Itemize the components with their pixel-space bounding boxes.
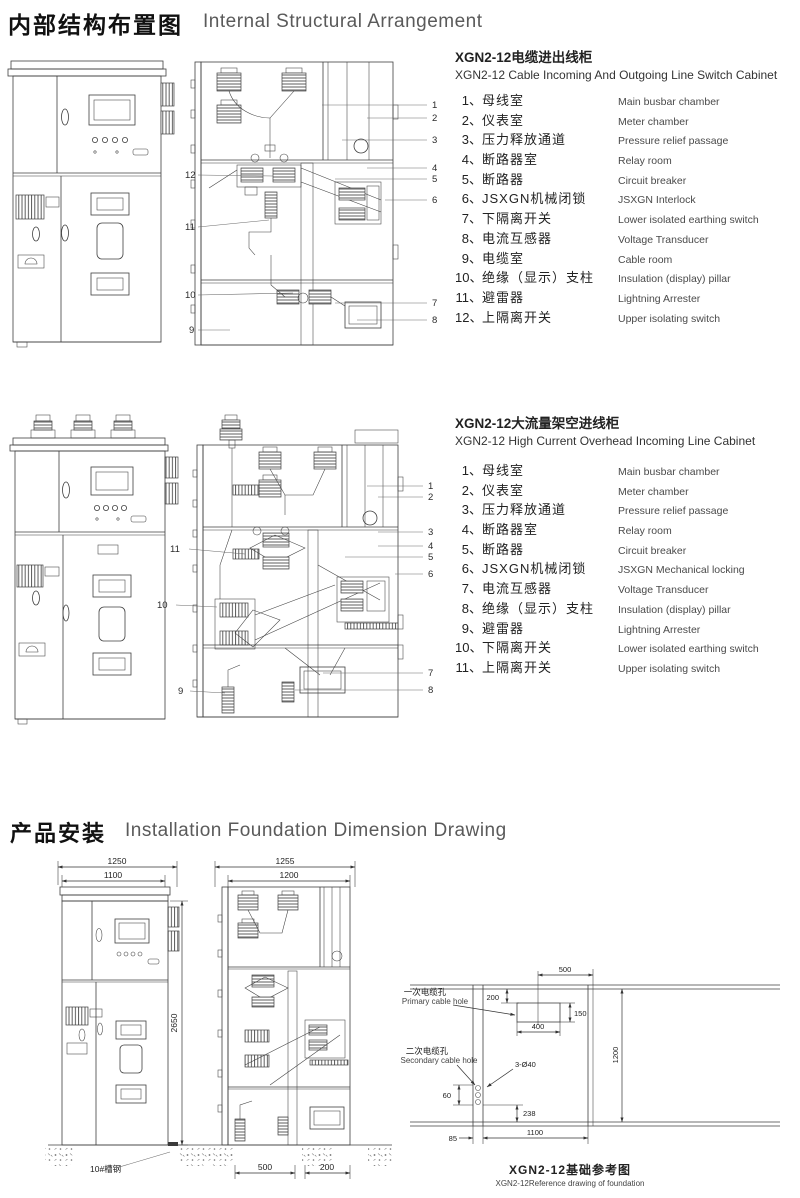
cabinet2-title-cn: XGN2-12大流量架空进线柜 <box>455 412 800 432</box>
cabinet2-title-en: XGN2-12 High Current Overhead Incoming L… <box>455 434 800 448</box>
item-label-cn: 压力释放通道 <box>482 129 618 148</box>
callout-7: 7 <box>432 298 437 309</box>
list-item: 8、电流互感器Voltage Transducer <box>455 228 800 248</box>
item-number: 5、 <box>455 539 482 558</box>
item-number: 9、 <box>455 618 482 637</box>
secondary-hole-label-cn: 二次电缆孔 <box>406 1046 449 1056</box>
item-number: 12、 <box>455 307 482 326</box>
item-number: 5、 <box>455 169 482 188</box>
dim-top-offset: 200 <box>486 993 499 1002</box>
dim-front-inner-width: 1100 <box>104 870 123 880</box>
item-label-cn: 仪表室 <box>482 110 618 129</box>
callout-12: 12 <box>185 170 196 181</box>
callout-9: 9 <box>178 686 183 697</box>
callout-1: 1 <box>432 100 437 111</box>
channel-steel-label: 10#槽钢 <box>90 1164 121 1174</box>
primary-hole-label-cn: 一次电缆孔 <box>404 987 447 997</box>
item-number: 7、 <box>455 208 482 227</box>
callout-6: 6 <box>428 569 433 580</box>
list-item: 2、仪表室Meter chamber <box>455 110 800 130</box>
item-label-en: Main busbar chamber <box>618 466 720 478</box>
item-number: 1、 <box>455 90 482 109</box>
callout-4: 4 <box>432 163 437 174</box>
item-label-en: Voltage Transducer <box>618 234 708 246</box>
item-number: 8、 <box>455 598 482 617</box>
item-number: 3、 <box>455 129 482 148</box>
item-label-en: Lightning Arrester <box>618 293 700 305</box>
item-number: 6、 <box>455 558 482 577</box>
list-item: 2、仪表室Meter chamber <box>455 480 800 500</box>
item-label-en: Upper isolating switch <box>618 313 720 325</box>
list-item: 6、JSXGN机械闭锁JSXGN Mechanical locking <box>455 558 800 578</box>
item-label-en: Relay room <box>618 525 672 537</box>
item-label-en: Meter chamber <box>618 486 689 498</box>
list-item: 8、绝缘（显示）支柱Insulation (display) pillar <box>455 598 800 618</box>
installation-title-cn: 产品安装 <box>10 816 106 848</box>
dim-front-height: 2650 <box>169 1013 179 1032</box>
item-number: 1、 <box>455 460 482 479</box>
list-item: 12、上隔离开关Upper isolating switch <box>455 307 800 327</box>
primary-hole-label-en: Primary cable hole <box>402 997 469 1006</box>
item-label-cn: 绝缘（显示）支柱 <box>482 267 618 286</box>
item-label-cn: JSXGN机械闭锁 <box>482 558 618 577</box>
item-number: 3、 <box>455 499 482 518</box>
callout-6: 6 <box>432 195 437 206</box>
dim-hole-width: 400 <box>532 1022 545 1031</box>
dim-section-outer-width: 1255 <box>276 856 295 866</box>
list-item: 4、断路器室Relay room <box>455 149 800 169</box>
item-label-cn: 电流互感器 <box>482 578 618 597</box>
list-item: 9、避雷器Lightning Arrester <box>455 618 800 638</box>
cabinet2-parts-list: XGN2-12大流量架空进线柜 XGN2-12 High Current Ove… <box>455 412 800 677</box>
item-label-cn: 上隔离开关 <box>482 307 618 326</box>
page-title-cn: 内部结构布置图 <box>8 6 183 40</box>
cabinet1-title-en: XGN2-12 Cable Incoming And Outgoing Line… <box>455 68 800 82</box>
list-item: 11、上隔离开关Upper isolating switch <box>455 657 800 677</box>
list-item: 7、电流互感器Voltage Transducer <box>455 578 800 598</box>
dim-foundation-width: 1100 <box>527 1128 543 1137</box>
item-label-en: JSXGN Interlock <box>618 194 696 206</box>
item-number: 11、 <box>455 657 482 676</box>
callout-5: 5 <box>432 174 437 185</box>
item-label-en: JSXGN Mechanical locking <box>618 564 745 576</box>
cabinet1-title-cn: XGN2-12电缆进出线柜 <box>455 46 800 66</box>
callout-1: 1 <box>428 481 433 492</box>
callout-9: 9 <box>189 325 194 336</box>
list-item: 1、母线室Main busbar chamber <box>455 460 800 480</box>
list-item: 5、断路器Circuit breaker <box>455 169 800 189</box>
item-label-cn: 断路器室 <box>482 519 618 538</box>
item-label-cn: 母线室 <box>482 90 618 109</box>
item-label-en: Insulation (display) pillar <box>618 604 731 616</box>
item-label-en: Pressure relief passage <box>618 135 728 147</box>
item-number: 10、 <box>455 267 482 286</box>
item-label-en: Insulation (display) pillar <box>618 273 731 285</box>
cabinet1-parts-list: XGN2-12电缆进出线柜 XGN2-12 Cable Incoming And… <box>455 46 800 326</box>
list-item: 9、电缆室Cable room <box>455 248 800 268</box>
item-number: 10、 <box>455 637 482 656</box>
item-label-en: Meter chamber <box>618 116 689 128</box>
callout-8: 8 <box>432 315 437 326</box>
list-item: 4、断路器室Relay room <box>455 519 800 539</box>
item-number: 2、 <box>455 110 482 129</box>
item-label-en: Lower isolated earthing switch <box>618 643 759 655</box>
item-label-en: Lower isolated earthing switch <box>618 214 759 226</box>
installation-title-en: Installation Foundation Dimension Drawin… <box>125 820 507 842</box>
item-label-cn: 断路器 <box>482 169 618 188</box>
dim-top-width: 500 <box>559 965 572 974</box>
dim-front-gap: 85 <box>449 1134 457 1143</box>
callout-3: 3 <box>432 135 437 146</box>
item-label-cn: 仪表室 <box>482 480 618 499</box>
item-label-cn: 电流互感器 <box>482 228 618 247</box>
item-label-cn: 电缆室 <box>482 248 618 267</box>
item-label-cn: 绝缘（显示）支柱 <box>482 598 618 617</box>
item-label-cn: 母线室 <box>482 460 618 479</box>
list-item: 10、下隔离开关Lower isolated earthing switch <box>455 637 800 657</box>
dim-hole-height: 150 <box>574 1009 587 1018</box>
foundation-reference-drawing: 500 200 150 400 1200 3-Ø40 60 238 85 11 <box>395 955 795 1198</box>
dim-section-inner-width: 1200 <box>280 870 299 880</box>
dim-trench-rear: 200 <box>320 1162 334 1172</box>
item-label-cn: JSXGN机械闭锁 <box>482 188 618 207</box>
list-item: 7、下隔离开关Lower isolated earthing switch <box>455 208 800 228</box>
secondary-hole-label-en: Secondary cable hole <box>401 1056 478 1065</box>
list-item: 3、压力释放通道Pressure relief passage <box>455 129 800 149</box>
dim-trench-front: 500 <box>258 1162 272 1172</box>
dim-sec-height: 60 <box>443 1091 451 1100</box>
item-label-en: Lightning Arrester <box>618 624 700 636</box>
item-label-cn: 上隔离开关 <box>482 657 618 676</box>
cabinet1-section-drawing: 1 2 3 4 5 6 7 8 12 11 10 9 <box>185 50 450 360</box>
item-label-cn: 断路器室 <box>482 149 618 168</box>
callout-5: 5 <box>428 552 433 563</box>
item-number: 7、 <box>455 578 482 597</box>
list-item: 6、JSXGN机械闭锁JSXGN Interlock <box>455 188 800 208</box>
catalog-page: 内部结构布置图 Internal Structural Arrangement <box>0 0 800 1198</box>
foundation-caption-en: XGN2-12Reference drawing of foundation <box>496 1179 645 1188</box>
list-item: 11、避雷器Lightning Arrester <box>455 287 800 307</box>
foundation-caption-cn: XGN2-12基础参考图 <box>509 1162 631 1177</box>
item-label-en: Pressure relief passage <box>618 505 728 517</box>
item-label-cn: 下隔离开关 <box>482 208 618 227</box>
dim-rear-offset: 238 <box>523 1109 536 1118</box>
list-item: 3、压力释放通道Pressure relief passage <box>455 499 800 519</box>
item-label-cn: 压力释放通道 <box>482 499 618 518</box>
cabinet2-section-drawing: 1 2 3 4 5 6 7 8 11 10 9 <box>145 415 450 735</box>
item-label-en: Circuit breaker <box>618 175 686 187</box>
cabinet1-front-view-drawing <box>5 55 183 355</box>
callout-4: 4 <box>428 541 433 552</box>
page-title-en: Internal Structural Arrangement <box>203 11 483 33</box>
item-label-en: Cable room <box>618 254 672 266</box>
item-label-cn: 断路器 <box>482 539 618 558</box>
callout-10: 10 <box>157 600 168 611</box>
installation-dimension-drawing: 1250 1100 2650 10#槽钢 <box>20 855 395 1198</box>
item-label-cn: 下隔离开关 <box>482 637 618 656</box>
dim-holes: 3-Ø40 <box>515 1060 536 1069</box>
item-number: 4、 <box>455 519 482 538</box>
item-number: 9、 <box>455 248 482 267</box>
callout-11: 11 <box>185 222 195 233</box>
item-label-en: Main busbar chamber <box>618 96 720 108</box>
item-number: 2、 <box>455 480 482 499</box>
callout-10: 10 <box>185 290 196 301</box>
callout-7: 7 <box>428 668 433 679</box>
list-item: 10、绝缘（显示）支柱Insulation (display) pillar <box>455 267 800 287</box>
list-item: 5、断路器Circuit breaker <box>455 539 800 559</box>
item-number: 4、 <box>455 149 482 168</box>
item-label-cn: 避雷器 <box>482 287 618 306</box>
callout-3: 3 <box>428 527 433 538</box>
roof-bushings <box>31 415 135 438</box>
callout-2: 2 <box>428 492 433 503</box>
item-label-cn: 避雷器 <box>482 618 618 637</box>
item-number: 6、 <box>455 188 482 207</box>
roof-bushing <box>220 415 242 448</box>
item-label-en: Upper isolating switch <box>618 663 720 675</box>
callout-2: 2 <box>432 113 437 124</box>
item-label-en: Circuit breaker <box>618 545 686 557</box>
item-number: 8、 <box>455 228 482 247</box>
list-item: 1、母线室Main busbar chamber <box>455 90 800 110</box>
item-label-en: Voltage Transducer <box>618 584 708 596</box>
callout-11: 11 <box>170 544 180 555</box>
dim-depth: 1200 <box>611 1047 620 1064</box>
dim-front-outer-width: 1250 <box>108 856 127 866</box>
callout-8: 8 <box>428 685 433 696</box>
item-number: 11、 <box>455 287 482 306</box>
item-label-en: Relay room <box>618 155 672 167</box>
